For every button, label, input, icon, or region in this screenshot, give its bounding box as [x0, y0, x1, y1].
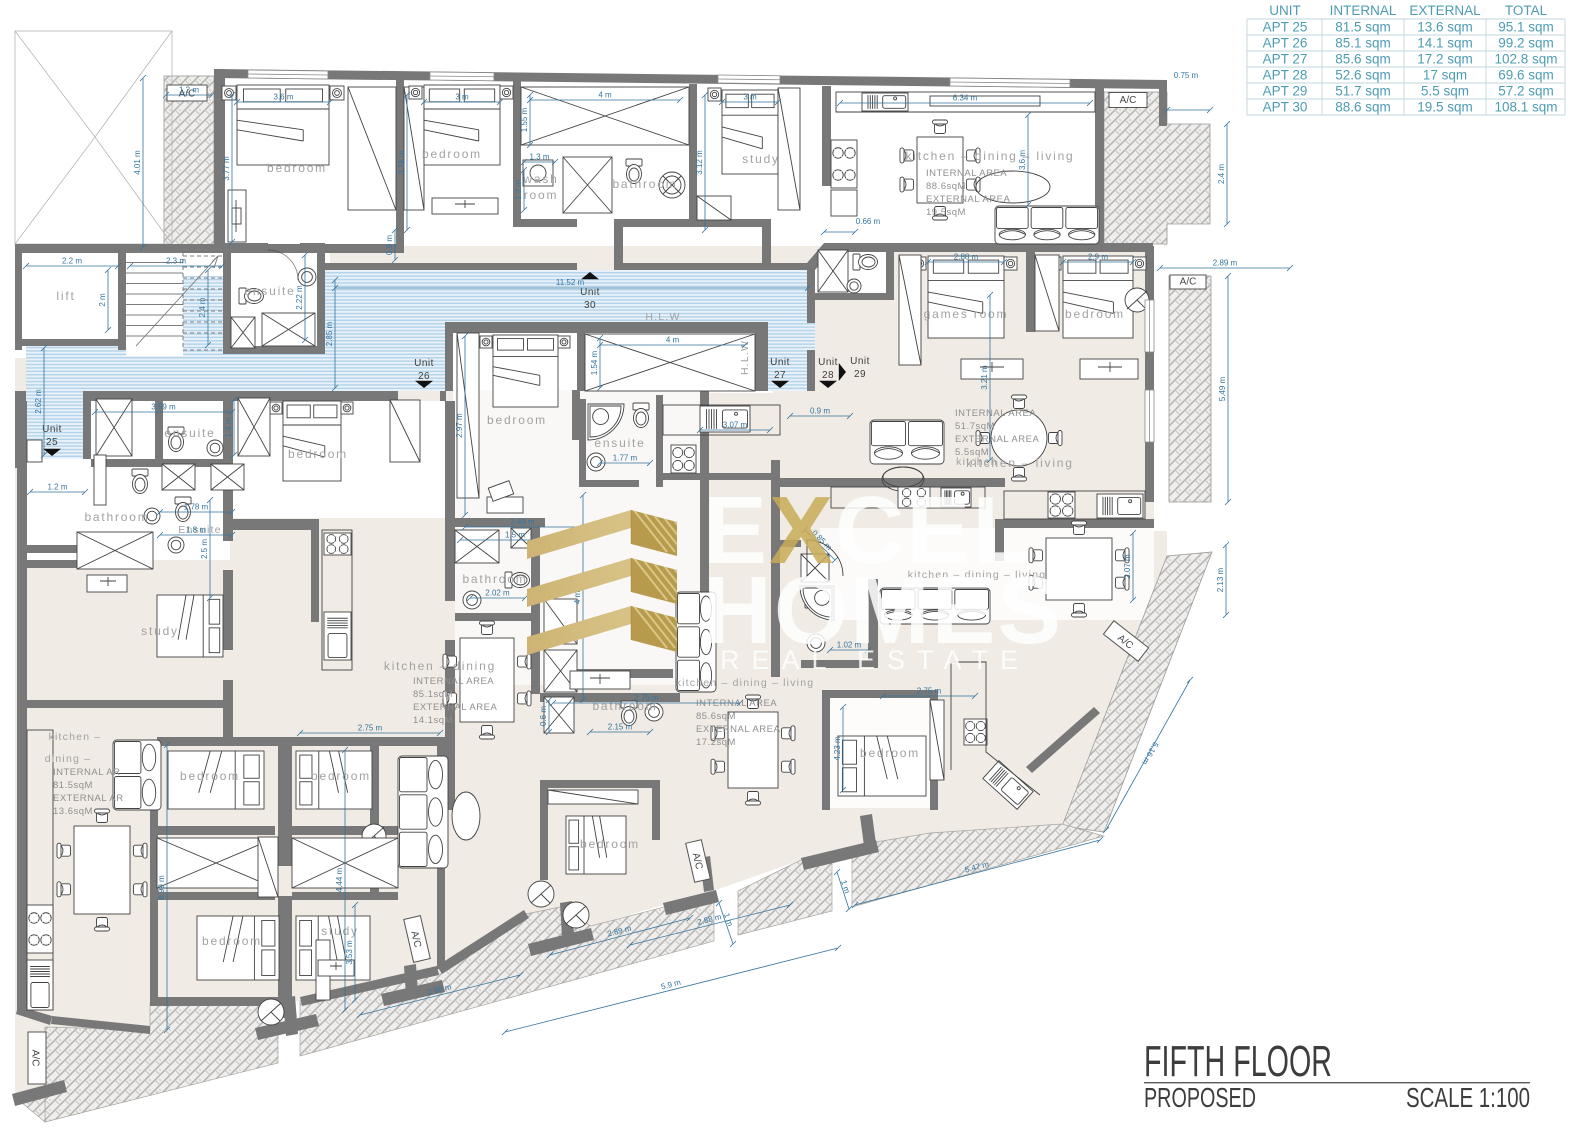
- svg-text:0.75 m: 0.75 m: [1174, 71, 1199, 80]
- svg-text:3.12 m: 3.12 m: [695, 150, 704, 175]
- svg-text:Unit: Unit: [580, 287, 600, 298]
- svg-text:17.2sqM: 17.2sqM: [696, 737, 736, 748]
- svg-text:2.9 m: 2.9 m: [1088, 253, 1108, 262]
- svg-text:bathroom: bathroom: [462, 572, 527, 586]
- svg-text:3.59 m: 3.59 m: [151, 403, 176, 412]
- svg-text:room: room: [524, 188, 559, 202]
- svg-text:88.6 sqm: 88.6 sqm: [1335, 100, 1391, 115]
- svg-text:games room: games room: [924, 307, 1009, 321]
- svg-text:SCALE 1:100: SCALE 1:100: [1406, 1082, 1530, 1113]
- svg-text:ensuite: ensuite: [594, 436, 645, 450]
- svg-text:APT 27: APT 27: [1263, 52, 1308, 67]
- svg-text:EXTERNAL AREA: EXTERNAL AREA: [413, 702, 497, 713]
- svg-text:2.62 m: 2.62 m: [34, 389, 43, 414]
- svg-text:2.88 m: 2.88 m: [954, 253, 979, 262]
- svg-text:3 m: 3 m: [455, 93, 469, 102]
- svg-text:14.1sqM: 14.1sqM: [413, 715, 453, 726]
- svg-text:study: study: [742, 152, 780, 166]
- svg-text:11.52 m: 11.52 m: [556, 278, 585, 287]
- svg-text:REAL ESTATE: REAL ESTATE: [720, 645, 1030, 675]
- svg-text:0.66 m: 0.66 m: [856, 217, 881, 226]
- svg-text:Unit: Unit: [818, 357, 838, 368]
- svg-text:0.6 m: 0.6 m: [539, 706, 548, 726]
- svg-text:lift: lift: [56, 289, 75, 303]
- svg-text:H.L.W: H.L.W: [645, 311, 680, 323]
- svg-text:wash: wash: [522, 172, 558, 186]
- svg-text:APT 28: APT 28: [1263, 68, 1308, 83]
- svg-text:2.13 m: 2.13 m: [1216, 567, 1225, 592]
- svg-text:108.1 sqm: 108.1 sqm: [1494, 100, 1557, 115]
- svg-text:19.5 sqm: 19.5 sqm: [1417, 100, 1473, 115]
- svg-text:4.01 m: 4.01 m: [133, 150, 142, 175]
- svg-text:2.5 m: 2.5 m: [200, 539, 209, 559]
- svg-text:A/C: A/C: [30, 1050, 41, 1067]
- svg-text:2 m: 2 m: [98, 293, 107, 307]
- svg-text:95.1 sqm: 95.1 sqm: [1498, 20, 1554, 35]
- svg-text:4.23 m: 4.23 m: [833, 736, 842, 761]
- svg-text:1.4 m: 1.4 m: [224, 417, 233, 437]
- svg-text:2.02 m: 2.02 m: [485, 589, 510, 598]
- svg-text:EXTERNAL AREA: EXTERNAL AREA: [926, 194, 1010, 205]
- svg-text:2.2 m: 2.2 m: [62, 257, 82, 266]
- svg-text:FIFTH FLOOR: FIFTH FLOOR: [1144, 1037, 1332, 1086]
- svg-text:APT 25: APT 25: [1263, 20, 1308, 35]
- svg-text:bedroom: bedroom: [180, 769, 240, 783]
- svg-text:2.49 m: 2.49 m: [510, 518, 535, 527]
- svg-text:bedroom: bedroom: [267, 161, 327, 175]
- svg-text:88.6sqM: 88.6sqM: [926, 181, 966, 192]
- svg-text:1.2 m: 1.2 m: [514, 180, 523, 200]
- svg-text:3.6 m: 3.6 m: [273, 93, 293, 102]
- svg-text:81.5sqM: 81.5sqM: [53, 780, 93, 791]
- svg-text:Unit: Unit: [414, 358, 434, 369]
- svg-text:85.6 sqm: 85.6 sqm: [1335, 52, 1391, 67]
- svg-text:26: 26: [418, 371, 430, 382]
- svg-text:30: 30: [584, 300, 596, 311]
- svg-text:3 m: 3 m: [743, 93, 757, 102]
- svg-text:19.5sqM: 19.5sqM: [926, 207, 966, 218]
- svg-text:52.6 sqm: 52.6 sqm: [1335, 68, 1391, 83]
- svg-text:69.6 sqm: 69.6 sqm: [1498, 68, 1554, 83]
- svg-text:INTERNAL AREA: INTERNAL AREA: [926, 168, 1007, 179]
- svg-text:bedroom: bedroom: [422, 147, 482, 161]
- svg-text:1.78 m: 1.78 m: [184, 503, 209, 512]
- svg-text:3.77 m: 3.77 m: [222, 156, 231, 181]
- svg-text:4.44 m: 4.44 m: [335, 867, 344, 892]
- svg-text:3.53 m: 3.53 m: [345, 940, 354, 965]
- svg-text:bedroom: bedroom: [1065, 307, 1125, 321]
- svg-text:17 sqm: 17 sqm: [1423, 68, 1467, 83]
- svg-text:0.9 m: 0.9 m: [810, 407, 830, 416]
- svg-text:2.3 m: 2.3 m: [166, 257, 186, 266]
- svg-text:1 m: 1 m: [839, 879, 852, 895]
- svg-text:PROPOSED: PROPOSED: [1144, 1082, 1256, 1113]
- svg-text:2.85 m: 2.85 m: [325, 321, 334, 346]
- svg-text:INTERNAL AREA: INTERNAL AREA: [955, 408, 1036, 419]
- svg-text:INTERNAL AREA: INTERNAL AREA: [413, 676, 494, 687]
- svg-text:2.4 m: 2.4 m: [198, 297, 207, 317]
- svg-text:29: 29: [854, 369, 866, 380]
- svg-text:bedroom: bedroom: [202, 934, 262, 948]
- svg-text:1.3 m: 1.3 m: [529, 153, 549, 162]
- svg-text:27: 27: [774, 370, 786, 381]
- svg-text:2.75 m: 2.75 m: [917, 687, 942, 696]
- svg-text:6.34 m: 6.34 m: [953, 94, 978, 103]
- svg-text:5.5sqM: 5.5sqM: [955, 447, 989, 458]
- svg-text:dining –: dining –: [45, 753, 91, 765]
- svg-text:5.9 m: 5.9 m: [660, 978, 682, 992]
- svg-text:INTERNAL: INTERNAL: [1330, 3, 1397, 18]
- svg-text:A/C: A/C: [1180, 277, 1197, 288]
- svg-text:57.2 sqm: 57.2 sqm: [1498, 84, 1554, 99]
- svg-text:51.7 sqm: 51.7 sqm: [1335, 84, 1391, 99]
- svg-text:2.97 m: 2.97 m: [455, 413, 464, 438]
- svg-text:2.07 m: 2.07 m: [1123, 554, 1132, 579]
- svg-text:4 m: 4 m: [666, 336, 680, 345]
- svg-text:3.07 m: 3.07 m: [723, 421, 748, 430]
- svg-text:1.8 m: 1.8 m: [186, 526, 206, 535]
- svg-text:14.1 sqm: 14.1 sqm: [1417, 36, 1473, 51]
- svg-text:4 m: 4 m: [598, 91, 612, 100]
- svg-text:EXTERNAL AREA: EXTERNAL AREA: [955, 434, 1039, 445]
- svg-text:bedroom: bedroom: [580, 837, 640, 851]
- svg-text:5.49 m: 5.49 m: [1218, 376, 1227, 401]
- svg-text:bedroom: bedroom: [487, 413, 547, 427]
- svg-text:5.5 sqm: 5.5 sqm: [1421, 84, 1469, 99]
- svg-text:2.4 m: 2.4 m: [1217, 164, 1226, 184]
- svg-text:INTERNAL AR: INTERNAL AR: [53, 767, 120, 778]
- svg-text:0.9 m: 0.9 m: [385, 235, 394, 255]
- svg-text:APT 26: APT 26: [1263, 36, 1308, 51]
- svg-text:bathroom: bathroom: [612, 177, 677, 191]
- svg-text:13.6 sqm: 13.6 sqm: [1417, 20, 1473, 35]
- svg-text:study: study: [141, 624, 179, 638]
- svg-text:1.54 m: 1.54 m: [590, 350, 599, 375]
- svg-text:3.21 m: 3.21 m: [980, 365, 989, 390]
- svg-text:2.75 m: 2.75 m: [634, 694, 659, 703]
- svg-text:1.77 m: 1.77 m: [613, 454, 638, 463]
- svg-text:1 m: 1 m: [722, 912, 735, 928]
- svg-text:Unit: Unit: [770, 357, 790, 368]
- svg-text:kitchen – dining: kitchen – dining: [384, 659, 496, 673]
- svg-text:17.2 sqm: 17.2 sqm: [1417, 52, 1473, 67]
- svg-text:5.16 m: 5.16 m: [1140, 740, 1160, 766]
- svg-text:UNIT: UNIT: [1269, 3, 1301, 18]
- svg-text:1.2 m: 1.2 m: [47, 483, 67, 492]
- svg-text:2.89 m: 2.89 m: [1213, 259, 1238, 268]
- svg-text:kitchen –: kitchen –: [49, 731, 102, 743]
- svg-text:13.6sqM: 13.6sqM: [53, 806, 93, 817]
- svg-text:99.2 sqm: 99.2 sqm: [1498, 36, 1554, 51]
- svg-text:3.6 m: 3.6 m: [1018, 150, 1027, 170]
- svg-text:EXTERNAL AR: EXTERNAL AR: [53, 793, 124, 804]
- svg-text:3.18 m: 3.18 m: [397, 150, 406, 175]
- svg-text:1.5 m: 1.5 m: [505, 531, 525, 540]
- svg-text:1.2 m: 1.2 m: [179, 86, 199, 95]
- svg-text:APT 29: APT 29: [1263, 84, 1308, 99]
- svg-text:bedroom: bedroom: [860, 746, 920, 760]
- svg-text:study: study: [321, 924, 359, 938]
- svg-text:A/C: A/C: [1120, 95, 1137, 106]
- svg-text:INTERNAL AREA: INTERNAL AREA: [696, 698, 777, 709]
- svg-text:EXTERNAL: EXTERNAL: [1409, 3, 1481, 18]
- svg-text:6.99 m: 6.99 m: [157, 875, 166, 900]
- svg-text:bedroom: bedroom: [311, 769, 371, 783]
- svg-text:TOTAL: TOTAL: [1505, 3, 1548, 18]
- svg-text:85.1 sqm: 85.1 sqm: [1335, 36, 1391, 51]
- svg-text:ensuite: ensuite: [164, 426, 215, 440]
- svg-text:85.6sqM: 85.6sqM: [696, 711, 736, 722]
- svg-text:51.7sqM: 51.7sqM: [955, 421, 995, 432]
- svg-text:bathroom: bathroom: [84, 510, 149, 524]
- svg-text:kitchen – dining – living: kitchen – dining – living: [676, 677, 815, 689]
- svg-text:28: 28: [822, 370, 834, 381]
- svg-text:bedroom: bedroom: [288, 447, 348, 461]
- svg-text:APT 30: APT 30: [1263, 100, 1308, 115]
- svg-text:Unit: Unit: [42, 424, 62, 435]
- svg-text:EXTERNAL AREA: EXTERNAL AREA: [696, 724, 780, 735]
- svg-text:ensuite: ensuite: [244, 284, 295, 298]
- svg-text:kitchen – dining – living: kitchen – dining – living: [905, 149, 1074, 163]
- svg-text:Unit: Unit: [850, 356, 870, 367]
- svg-text:2.15 m: 2.15 m: [608, 723, 633, 732]
- svg-text:2.22 m: 2.22 m: [295, 285, 304, 310]
- svg-text:2.75 m: 2.75 m: [358, 724, 383, 733]
- svg-text:85.1sqM: 85.1sqM: [413, 689, 453, 700]
- svg-text:102.8 sqm: 102.8 sqm: [1494, 52, 1557, 67]
- svg-text:25: 25: [46, 437, 58, 448]
- svg-text:1.55 m: 1.55 m: [520, 107, 529, 132]
- svg-text:81.5 sqm: 81.5 sqm: [1335, 20, 1391, 35]
